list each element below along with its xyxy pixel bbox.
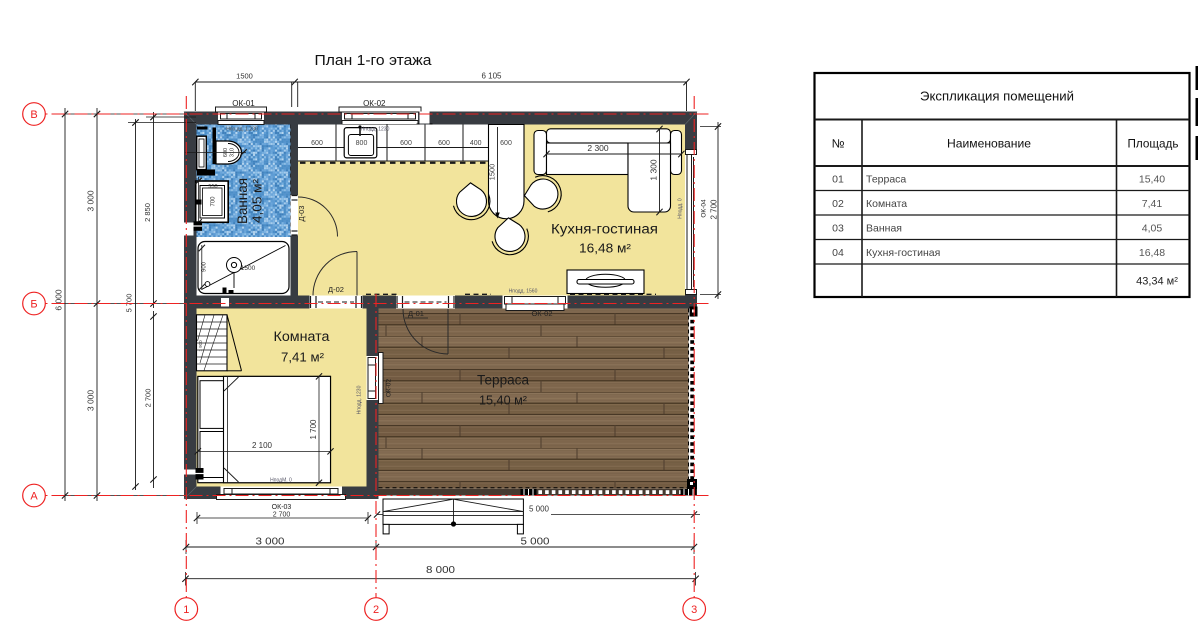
svg-text:4,05 м²: 4,05 м² <box>250 178 265 223</box>
svg-text:16,48: 16,48 <box>1139 247 1165 259</box>
svg-text:В: В <box>30 109 37 121</box>
svg-text:1 900: 1 900 <box>198 340 203 352</box>
svg-text:1500: 1500 <box>488 164 497 181</box>
svg-text:310: 310 <box>230 148 236 157</box>
svg-text:02: 02 <box>832 198 844 210</box>
svg-text:Кухня-гостиная: Кухня-гостиная <box>551 222 658 237</box>
svg-text:Д-01: Д-01 <box>408 309 424 318</box>
svg-text:Терраса: Терраса <box>477 373 529 388</box>
svg-text:16,48 м²: 16,48 м² <box>579 241 632 256</box>
svg-text:600: 600 <box>223 148 229 157</box>
svg-text:Нподд. 1230: Нподд. 1230 <box>361 127 390 133</box>
svg-text:15,40 м²: 15,40 м² <box>479 393 528 408</box>
svg-text:Кухня-гостиная: Кухня-гостиная <box>866 247 940 259</box>
svg-text:04: 04 <box>832 247 844 259</box>
svg-text:А: А <box>30 491 38 503</box>
svg-text:ОК-01: ОК-01 <box>232 99 255 108</box>
svg-text:6 105: 6 105 <box>481 72 502 81</box>
svg-text:Экспликация помещений: Экспликация помещений <box>920 89 1074 104</box>
svg-text:3 000: 3 000 <box>86 190 96 212</box>
svg-text:1: 1 <box>183 604 189 616</box>
svg-text:7,41: 7,41 <box>1142 198 1163 210</box>
svg-text:Б: Б <box>30 299 37 311</box>
svg-text:600: 600 <box>500 140 512 147</box>
svg-text:Нпо дд. 1.230: Нпо дд. 1.230 <box>226 127 258 133</box>
svg-text:600: 600 <box>438 140 450 147</box>
svg-text:План 1-го этажа: План 1-го этажа <box>315 53 433 69</box>
svg-text:Наименование: Наименование <box>947 137 1031 151</box>
svg-text:8 000: 8 000 <box>426 565 456 576</box>
svg-text:5 000: 5 000 <box>529 505 550 514</box>
svg-text:6 000: 6 000 <box>54 289 64 311</box>
svg-text:Комната: Комната <box>866 198 907 210</box>
svg-text:7,41 м²: 7,41 м² <box>281 350 325 365</box>
svg-text:Комната: Комната <box>274 329 331 344</box>
svg-text:900: 900 <box>202 261 208 272</box>
svg-text:3 000: 3 000 <box>256 537 286 548</box>
svg-text:2 700: 2 700 <box>710 199 719 220</box>
svg-text:1 300: 1 300 <box>649 159 659 181</box>
svg-text:800: 800 <box>356 140 368 147</box>
svg-text:2 700: 2 700 <box>273 512 291 519</box>
svg-text:2: 2 <box>373 604 379 616</box>
svg-text:700: 700 <box>211 196 217 207</box>
svg-text:1 700: 1 700 <box>309 419 318 440</box>
svg-text:Д-02: Д-02 <box>328 285 344 294</box>
svg-text:ОК-04: ОК-04 <box>701 199 708 218</box>
svg-text:Терраса: Терраса <box>866 174 906 186</box>
svg-text:НподМ. 0: НподМ. 0 <box>270 478 292 484</box>
svg-text:43,34 м²: 43,34 м² <box>1136 276 1178 288</box>
svg-text:2 100: 2 100 <box>252 441 273 450</box>
svg-text:03: 03 <box>832 223 844 235</box>
svg-text:Площадь: Площадь <box>1128 137 1179 151</box>
svg-text:ОК-02: ОК-02 <box>363 99 386 108</box>
svg-text:600: 600 <box>400 140 412 147</box>
svg-text:550: 550 <box>208 184 217 190</box>
svg-text:600: 600 <box>311 140 323 147</box>
svg-text:2 850: 2 850 <box>143 203 152 222</box>
svg-text:Нподд. 1560: Нподд. 1560 <box>509 289 538 295</box>
svg-text:5 000: 5 000 <box>521 537 551 548</box>
svg-text:ОК-03: ОК-03 <box>272 504 292 511</box>
svg-text:2 700: 2 700 <box>144 389 153 408</box>
svg-text:01: 01 <box>832 174 844 186</box>
svg-text:Д-03: Д-03 <box>297 206 306 222</box>
svg-text:4,05: 4,05 <box>1142 223 1163 235</box>
svg-text:400: 400 <box>470 140 482 147</box>
svg-text:ОК-02: ОК-02 <box>386 379 393 398</box>
svg-text:Нподд. 0: Нподд. 0 <box>678 198 684 219</box>
svg-text:1500: 1500 <box>236 72 253 81</box>
svg-text:3: 3 <box>691 604 697 616</box>
svg-text:15,40: 15,40 <box>1139 174 1165 186</box>
svg-text:1500: 1500 <box>241 265 256 272</box>
svg-text:Нподд. 1230: Нподд. 1230 <box>357 385 363 414</box>
svg-text:Ванная: Ванная <box>866 223 902 235</box>
svg-text:№: № <box>832 137 845 151</box>
svg-text:Ванная: Ванная <box>235 178 250 224</box>
svg-text:2 300: 2 300 <box>587 143 609 153</box>
svg-text:ОК-02: ОК-02 <box>531 309 552 318</box>
svg-text:3 000: 3 000 <box>86 390 96 412</box>
